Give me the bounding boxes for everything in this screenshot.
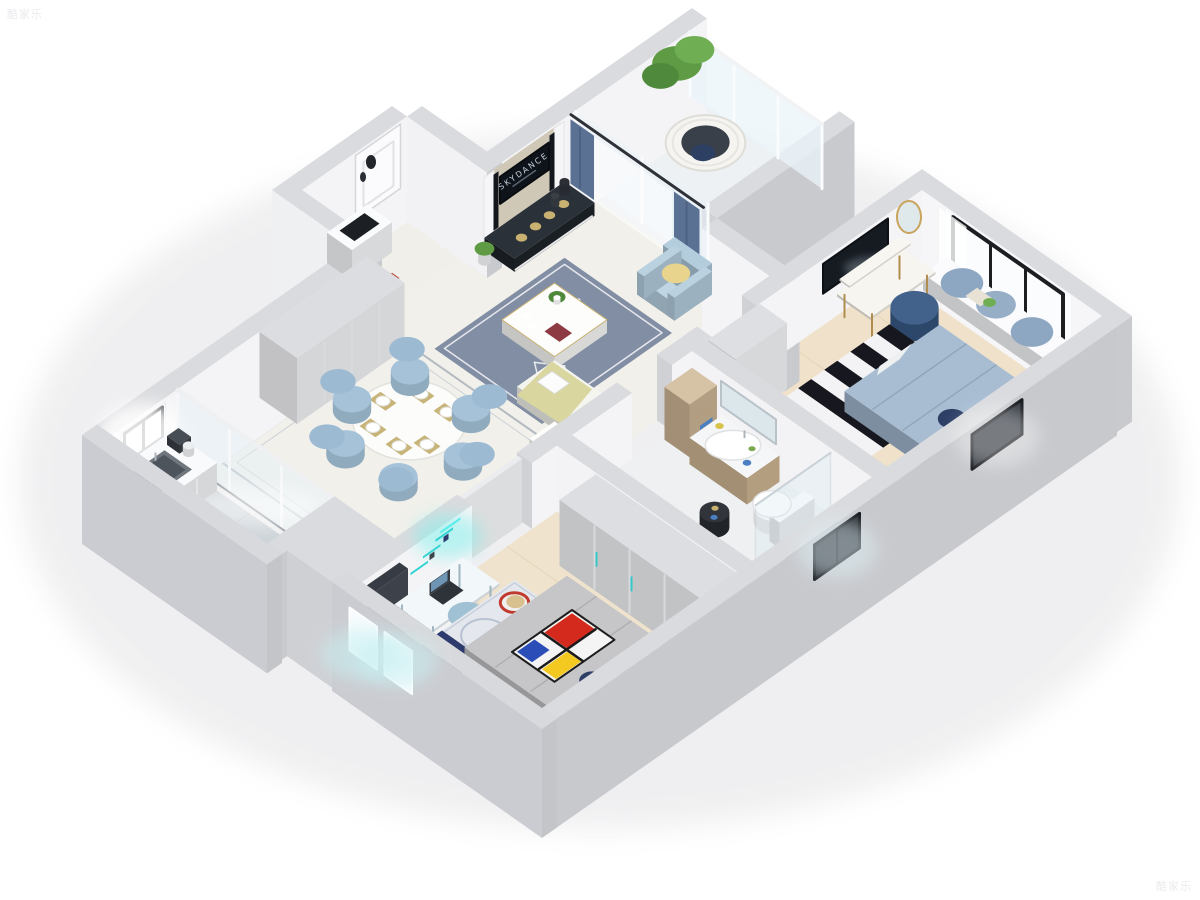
- entrance-door-handle: [360, 172, 366, 182]
- decor-vase: [560, 178, 570, 196]
- bath-toiletry: [715, 423, 724, 429]
- decor-gold-plate: [530, 222, 541, 230]
- bath-toiletry: [743, 460, 752, 466]
- master-round-mirror: [897, 201, 921, 233]
- coffee-table-teacup: [528, 324, 535, 329]
- watermark-bottom-right: 酷家乐: [1156, 878, 1192, 894]
- bath-side-table-decor: [710, 515, 717, 520]
- dining-chair-seat: [391, 358, 429, 396]
- tv-speaker-column: [550, 132, 555, 192]
- kids-sw-window-glow: [357, 635, 437, 687]
- dining-chair-back: [320, 369, 356, 394]
- kitchen-kettle: [183, 441, 194, 457]
- dining-chair-back: [459, 442, 495, 467]
- decor-vase: [551, 193, 560, 208]
- balcony-wall-plant: [642, 63, 679, 89]
- kids-nw-wall-upper: [517, 435, 557, 529]
- apartment-3d-floorplan: SKYDANCE⚓: [0, 0, 1200, 900]
- decor-gold-plate: [558, 200, 569, 208]
- watermark-top-left: 酷家乐: [7, 6, 43, 22]
- bay-decor-plant: [983, 298, 996, 307]
- dinner-plate: [420, 439, 434, 449]
- coffee-table-vase: [553, 295, 560, 305]
- bath-side-table-decor: [711, 506, 718, 511]
- bath-basin: [705, 430, 760, 460]
- armchair-yellow-pillow: [662, 263, 690, 283]
- entrance-door-viewer: [366, 155, 376, 169]
- dining-chair-back: [309, 424, 345, 449]
- tv-speaker-column: [494, 171, 499, 231]
- dining-chair-back: [472, 384, 508, 409]
- decor-gold-plate: [544, 211, 555, 219]
- bay-cushion: [1011, 317, 1054, 347]
- living-plant-small-leaves: [475, 242, 495, 256]
- egg-chair-pillow: [691, 144, 715, 161]
- dinner-plate: [366, 423, 380, 433]
- decor-gold-plate: [516, 234, 527, 242]
- balcony-wall-plant: [675, 36, 715, 64]
- lifebuoy-ball: [506, 595, 524, 608]
- dinner-plate: [392, 441, 406, 451]
- floorplan-render-stage: SKYDANCE⚓ 酷家乐 酷家乐: [0, 0, 1200, 900]
- dining-chair-back: [389, 337, 425, 362]
- dinner-plate: [376, 396, 390, 406]
- coffee-table-teacup: [523, 313, 530, 318]
- bath-se-window-glow: [797, 519, 877, 579]
- dining-chair-back: [378, 467, 414, 492]
- master-se-window-glow: [955, 407, 1039, 467]
- bath-toiletry: [748, 446, 755, 451]
